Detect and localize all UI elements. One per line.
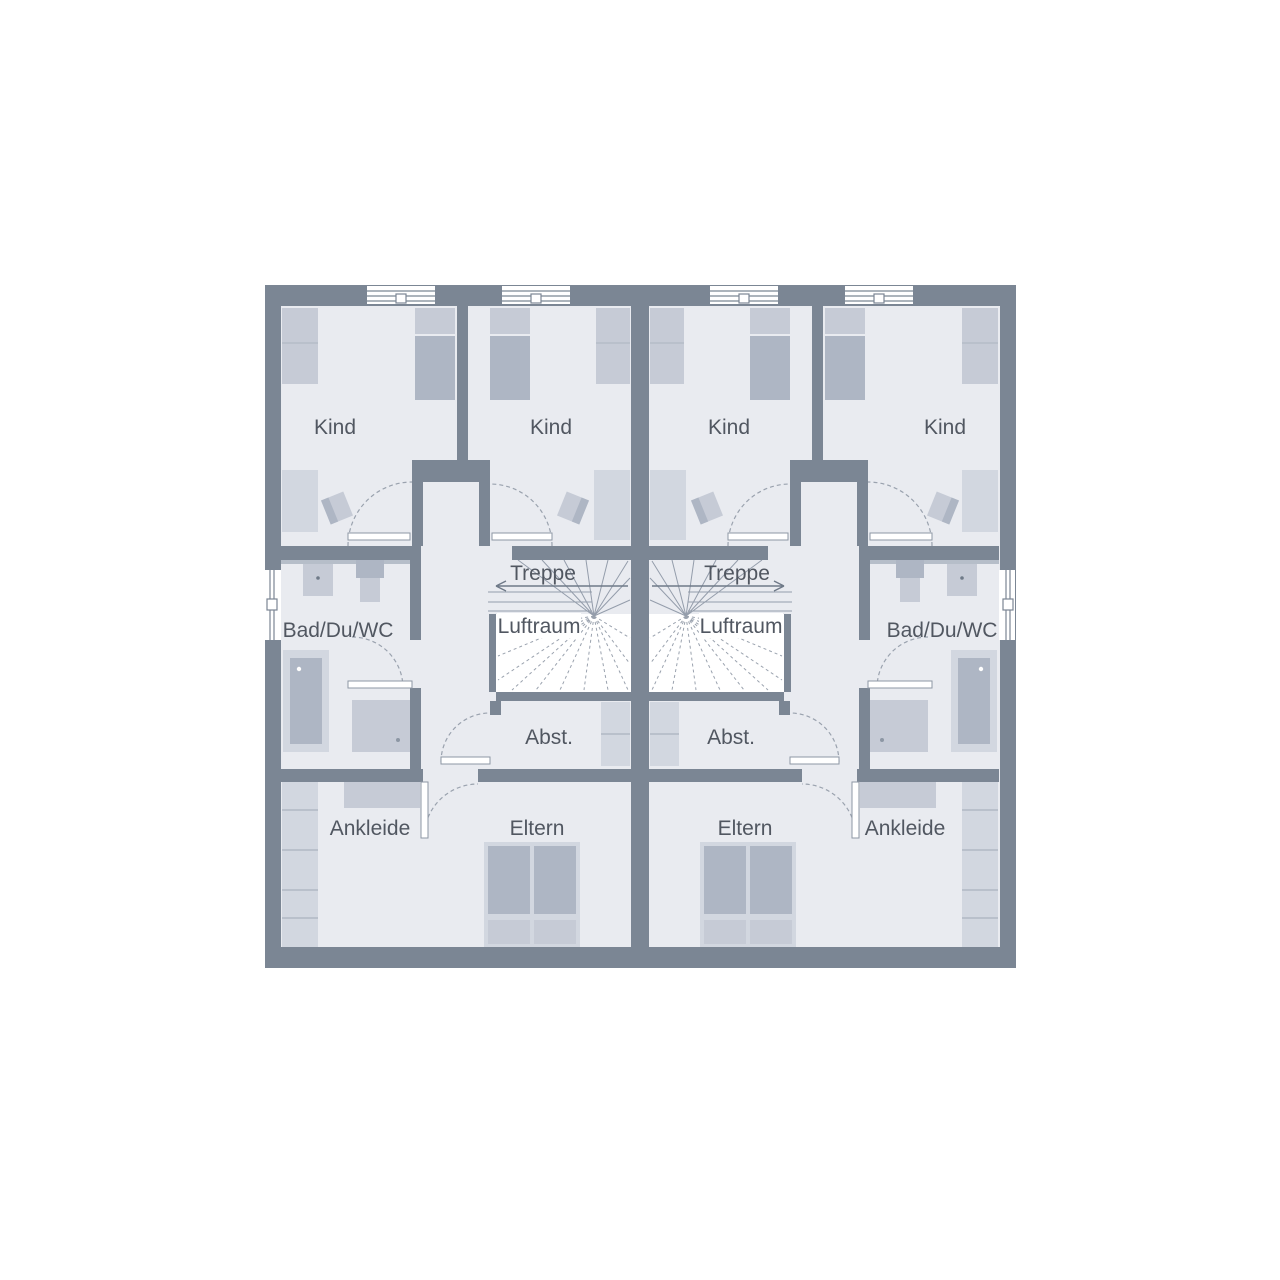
interior-wall [784,614,791,692]
desk [650,470,686,540]
bed-pillow [750,308,790,334]
interior-wall [412,460,490,482]
interior-wall [412,482,423,546]
floor-plan: Kind Kind Kind Kind Treppe Treppe Luftra… [0,0,1280,1280]
desk [282,470,318,532]
room-label-bad: Bad/Du/WC [283,619,394,642]
party-wall [631,285,649,947]
mattress [488,846,530,914]
interior-wall [479,482,490,546]
interior-wall [489,614,496,692]
window-icon [845,286,913,304]
mattress [750,846,792,914]
window-icon [999,570,1015,640]
room-label-bad: Bad/Du/WC [887,619,998,642]
bed-pillow [704,920,746,944]
interior-wall [779,701,790,715]
interior-wall [478,769,631,782]
interior-wall [649,692,784,701]
bed-pillow [534,920,576,944]
window-icon [502,286,570,304]
interior-wall [859,546,870,640]
room-label-abst: Abst. [525,726,573,749]
interior-wall [512,546,631,560]
toilet-bowl [900,578,920,602]
door-leaf [441,757,490,764]
bed-pillow [490,308,530,334]
bed [825,336,865,400]
floor-plan-page: Kind Kind Kind Kind Treppe Treppe Luftra… [0,0,1280,1280]
interior-wall [410,546,421,640]
wardrobe-strip [282,780,318,947]
interior-wall [457,306,468,464]
bed-pillow [825,308,865,334]
mattress [534,846,576,914]
door-leaf [348,681,412,688]
room-label-kind: Kind [314,416,356,439]
bathtub-inner [290,658,322,744]
shower [870,700,928,752]
wardrobe-strip [962,780,998,947]
bed [750,336,790,400]
door-leaf [852,782,859,838]
toilet-bowl [360,578,380,602]
door-leaf [728,533,788,540]
room-label-ankleide: Ankleide [865,817,946,840]
interior-wall [812,306,823,464]
window-icon [265,570,281,640]
room-label-kind: Kind [530,416,572,439]
door-leaf [870,533,932,540]
window-icon [367,286,435,304]
wardrobe [962,308,998,384]
interior-wall [868,546,999,560]
door-leaf [421,782,428,838]
interior-wall [859,688,870,769]
interior-wall [649,546,768,560]
interior-wall [496,692,631,701]
room-label-eltern: Eltern [718,817,773,840]
room-label-kind: Kind [924,416,966,439]
wardrobe [596,308,630,384]
interior-wall [410,688,421,769]
wardrobe [650,308,684,384]
door-leaf [492,533,552,540]
door-leaf [790,757,839,764]
sink [303,564,333,596]
interior-wall [281,769,423,782]
room-label-treppe: Treppe [704,562,770,585]
room-label-eltern: Eltern [510,817,565,840]
door-leaf [348,533,410,540]
room-label-ankleide: Ankleide [330,817,411,840]
bathtub-inner [958,658,990,744]
bed-pillow [415,308,455,334]
wardrobe [860,782,936,808]
bed-pillow [488,920,530,944]
interior-wall [790,460,868,482]
room-label-kind: Kind [708,416,750,439]
interior-wall [490,701,501,715]
desk [594,470,630,540]
room-label-treppe: Treppe [510,562,576,585]
room-label-luftraum: Luftraum [498,615,581,638]
shower [352,700,410,752]
desk [962,470,998,532]
wardrobe [282,308,318,384]
exterior-wall-bottom [265,947,1016,968]
mattress [704,846,746,914]
interior-wall [281,546,412,560]
window-icon [710,286,778,304]
interior-wall [790,482,801,546]
bed [490,336,530,400]
interior-wall [857,769,999,782]
door-leaf [868,681,932,688]
interior-wall [649,769,802,782]
sink [947,564,977,596]
bed-pillow [750,920,792,944]
room-label-luftraum: Luftraum [700,615,783,638]
bed [415,336,455,400]
interior-wall [857,482,868,546]
room-label-abst: Abst. [707,726,755,749]
wardrobe [344,782,420,808]
